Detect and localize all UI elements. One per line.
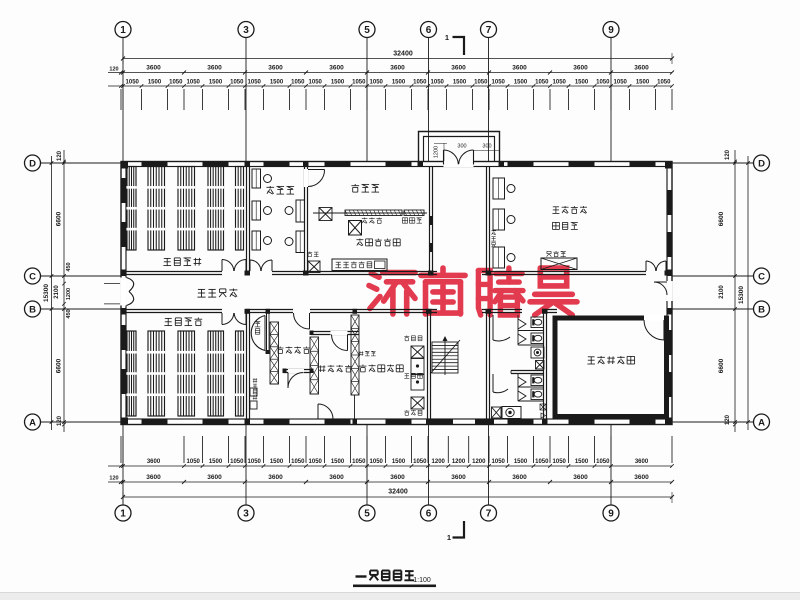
svg-text:1050: 1050 [230, 79, 244, 85]
svg-text:1050: 1050 [187, 79, 201, 85]
svg-text:1500: 1500 [209, 459, 223, 465]
svg-text:32400: 32400 [388, 489, 408, 496]
svg-text:1050: 1050 [291, 459, 305, 465]
svg-text:C: C [29, 272, 36, 283]
svg-text:1500: 1500 [270, 79, 284, 85]
svg-text:1500: 1500 [514, 79, 528, 85]
svg-text:D: D [758, 159, 765, 170]
svg-text:3600: 3600 [512, 474, 527, 481]
svg-text:1200: 1200 [452, 459, 466, 465]
svg-text:1: 1 [447, 533, 451, 542]
svg-text:1050: 1050 [309, 459, 323, 465]
svg-text:1050: 1050 [352, 459, 366, 465]
svg-text:3600: 3600 [207, 474, 222, 481]
svg-text:1050: 1050 [291, 79, 305, 85]
svg-text:120: 120 [725, 414, 731, 425]
svg-text:3600: 3600 [512, 65, 527, 72]
svg-text:1050: 1050 [535, 79, 549, 85]
svg-text:15300: 15300 [43, 284, 50, 302]
svg-text:1:100: 1:100 [413, 577, 431, 584]
svg-text:5: 5 [364, 509, 370, 520]
svg-text:32400: 32400 [393, 51, 413, 58]
svg-text:1050: 1050 [187, 459, 201, 465]
svg-text:1050: 1050 [126, 79, 140, 85]
svg-text:A: A [29, 418, 36, 429]
svg-text:3600: 3600 [268, 474, 283, 481]
svg-text:1: 1 [120, 25, 126, 36]
svg-text:300: 300 [457, 144, 466, 150]
svg-text:3600: 3600 [207, 65, 222, 72]
svg-text:3600: 3600 [635, 459, 649, 465]
svg-text:1: 1 [445, 33, 449, 42]
svg-text:3: 3 [243, 509, 249, 520]
svg-text:1050: 1050 [309, 79, 323, 85]
svg-text:1200: 1200 [66, 288, 72, 300]
svg-text:1050: 1050 [248, 459, 262, 465]
svg-text:300: 300 [482, 144, 491, 150]
svg-text:120: 120 [57, 150, 63, 161]
svg-text:1500: 1500 [392, 459, 406, 465]
svg-text:3600: 3600 [268, 65, 283, 72]
svg-text:1500: 1500 [453, 79, 467, 85]
svg-text:1500: 1500 [636, 79, 650, 85]
svg-text:3600: 3600 [451, 65, 466, 72]
svg-text:1500: 1500 [209, 79, 223, 85]
svg-text:9: 9 [608, 25, 614, 36]
svg-text:1500: 1500 [331, 79, 345, 85]
svg-text:120: 120 [109, 476, 118, 482]
svg-text:3600: 3600 [573, 474, 588, 481]
svg-text:1050: 1050 [657, 79, 671, 85]
svg-text:1050: 1050 [535, 459, 549, 465]
svg-text:3600: 3600 [451, 474, 466, 481]
svg-text:C: C [758, 272, 765, 283]
svg-text:1050: 1050 [492, 79, 506, 85]
svg-text:3600: 3600 [634, 65, 649, 72]
svg-text:1500: 1500 [392, 79, 406, 85]
svg-text:1050: 1050 [230, 459, 244, 465]
svg-text:3600: 3600 [573, 65, 588, 72]
svg-text:1050: 1050 [431, 79, 445, 85]
svg-text:6600: 6600 [56, 358, 63, 373]
svg-text:1500: 1500 [331, 459, 345, 465]
svg-text:6: 6 [426, 509, 432, 520]
svg-text:1200: 1200 [434, 146, 440, 158]
svg-text:1500: 1500 [514, 459, 528, 465]
svg-text:1050: 1050 [352, 79, 366, 85]
svg-text:B: B [29, 305, 36, 316]
svg-text:3600: 3600 [390, 65, 405, 72]
svg-text:6600: 6600 [56, 211, 63, 226]
svg-text:120: 120 [725, 149, 731, 160]
svg-text:7: 7 [486, 509, 492, 520]
svg-text:2100: 2100 [719, 285, 725, 299]
svg-text:1050: 1050 [169, 79, 183, 85]
svg-text:1050: 1050 [553, 79, 567, 85]
svg-text:A: A [758, 418, 765, 429]
svg-text:3600: 3600 [147, 459, 161, 465]
svg-text:1050: 1050 [370, 459, 384, 465]
svg-text:1500: 1500 [575, 79, 589, 85]
svg-text:1: 1 [120, 509, 126, 520]
svg-text:1050: 1050 [474, 79, 488, 85]
svg-text:9: 9 [608, 509, 614, 520]
svg-text:1050: 1050 [413, 79, 427, 85]
svg-text:D: D [29, 159, 36, 170]
svg-text:1050: 1050 [248, 79, 262, 85]
svg-text:120: 120 [109, 67, 118, 73]
svg-text:1200: 1200 [472, 459, 486, 465]
svg-text:3600: 3600 [329, 65, 344, 72]
svg-text:1050: 1050 [614, 79, 628, 85]
svg-text:6600: 6600 [718, 211, 725, 226]
svg-text:3600: 3600 [146, 474, 161, 481]
svg-text:1050: 1050 [413, 459, 427, 465]
svg-text:5: 5 [364, 25, 370, 36]
svg-text:15300: 15300 [738, 286, 745, 304]
svg-text:3600: 3600 [329, 474, 344, 481]
svg-text:3: 3 [243, 25, 249, 36]
svg-text:6: 6 [426, 25, 432, 36]
svg-text:7: 7 [486, 25, 492, 36]
svg-text:1050: 1050 [596, 79, 610, 85]
svg-text:450: 450 [66, 262, 72, 271]
svg-text:1500: 1500 [270, 459, 284, 465]
svg-text:B: B [758, 305, 765, 316]
svg-text:1200: 1200 [432, 459, 446, 465]
svg-text:1050: 1050 [553, 459, 567, 465]
svg-text:2100: 2100 [54, 285, 60, 299]
svg-text:120: 120 [57, 415, 63, 426]
svg-text:450: 450 [66, 309, 72, 318]
svg-text:1500: 1500 [148, 79, 162, 85]
svg-text:3600: 3600 [146, 65, 161, 72]
svg-text:6600: 6600 [718, 358, 725, 373]
svg-text:1050: 1050 [492, 459, 506, 465]
svg-text:1050: 1050 [596, 459, 610, 465]
svg-text:3600: 3600 [634, 474, 649, 481]
svg-text:3600: 3600 [390, 474, 405, 481]
svg-text:1500: 1500 [575, 459, 589, 465]
svg-text:1050: 1050 [370, 79, 384, 85]
